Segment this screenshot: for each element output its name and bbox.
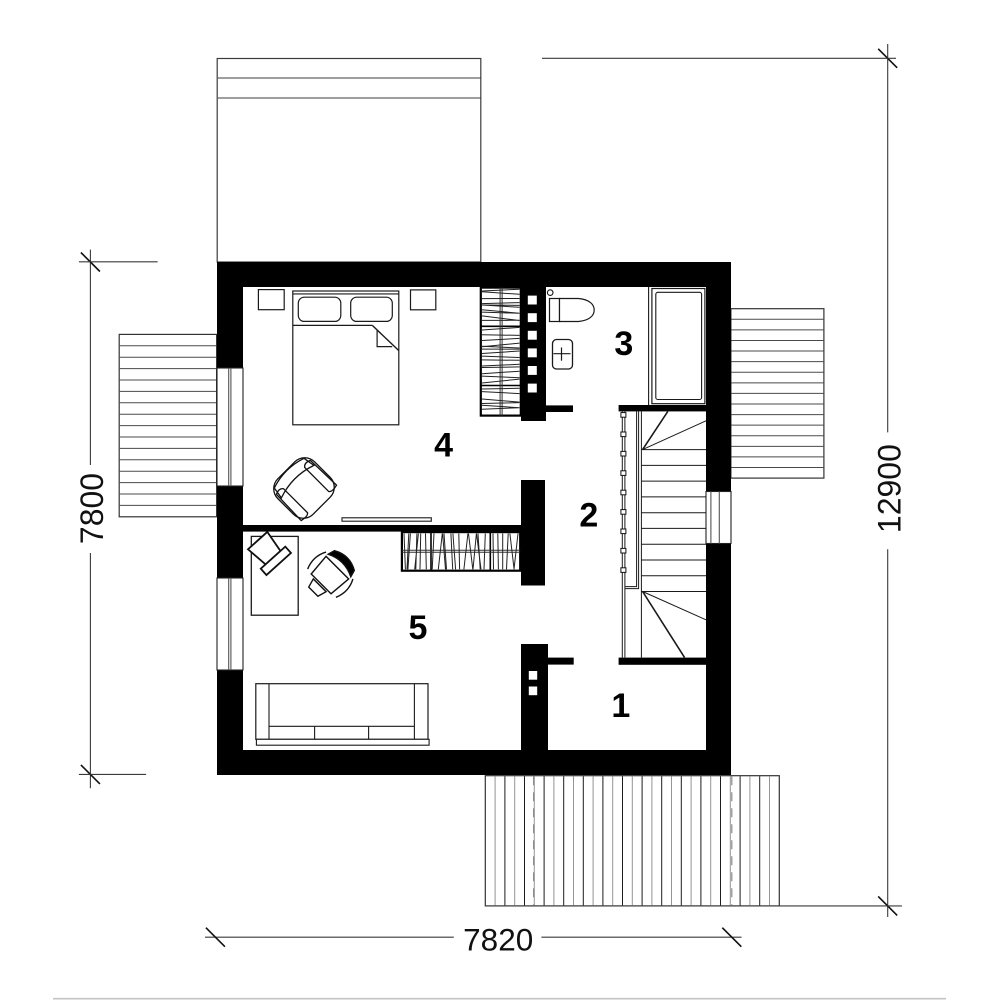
svg-text:4: 4 — [434, 426, 453, 464]
svg-text:3: 3 — [614, 325, 633, 363]
svg-text:12900: 12900 — [871, 444, 907, 533]
svg-text:1: 1 — [611, 687, 630, 725]
svg-text:2: 2 — [579, 496, 598, 534]
svg-text:7820: 7820 — [463, 921, 533, 957]
svg-text:5: 5 — [409, 609, 428, 647]
svg-text:7800: 7800 — [74, 473, 110, 544]
